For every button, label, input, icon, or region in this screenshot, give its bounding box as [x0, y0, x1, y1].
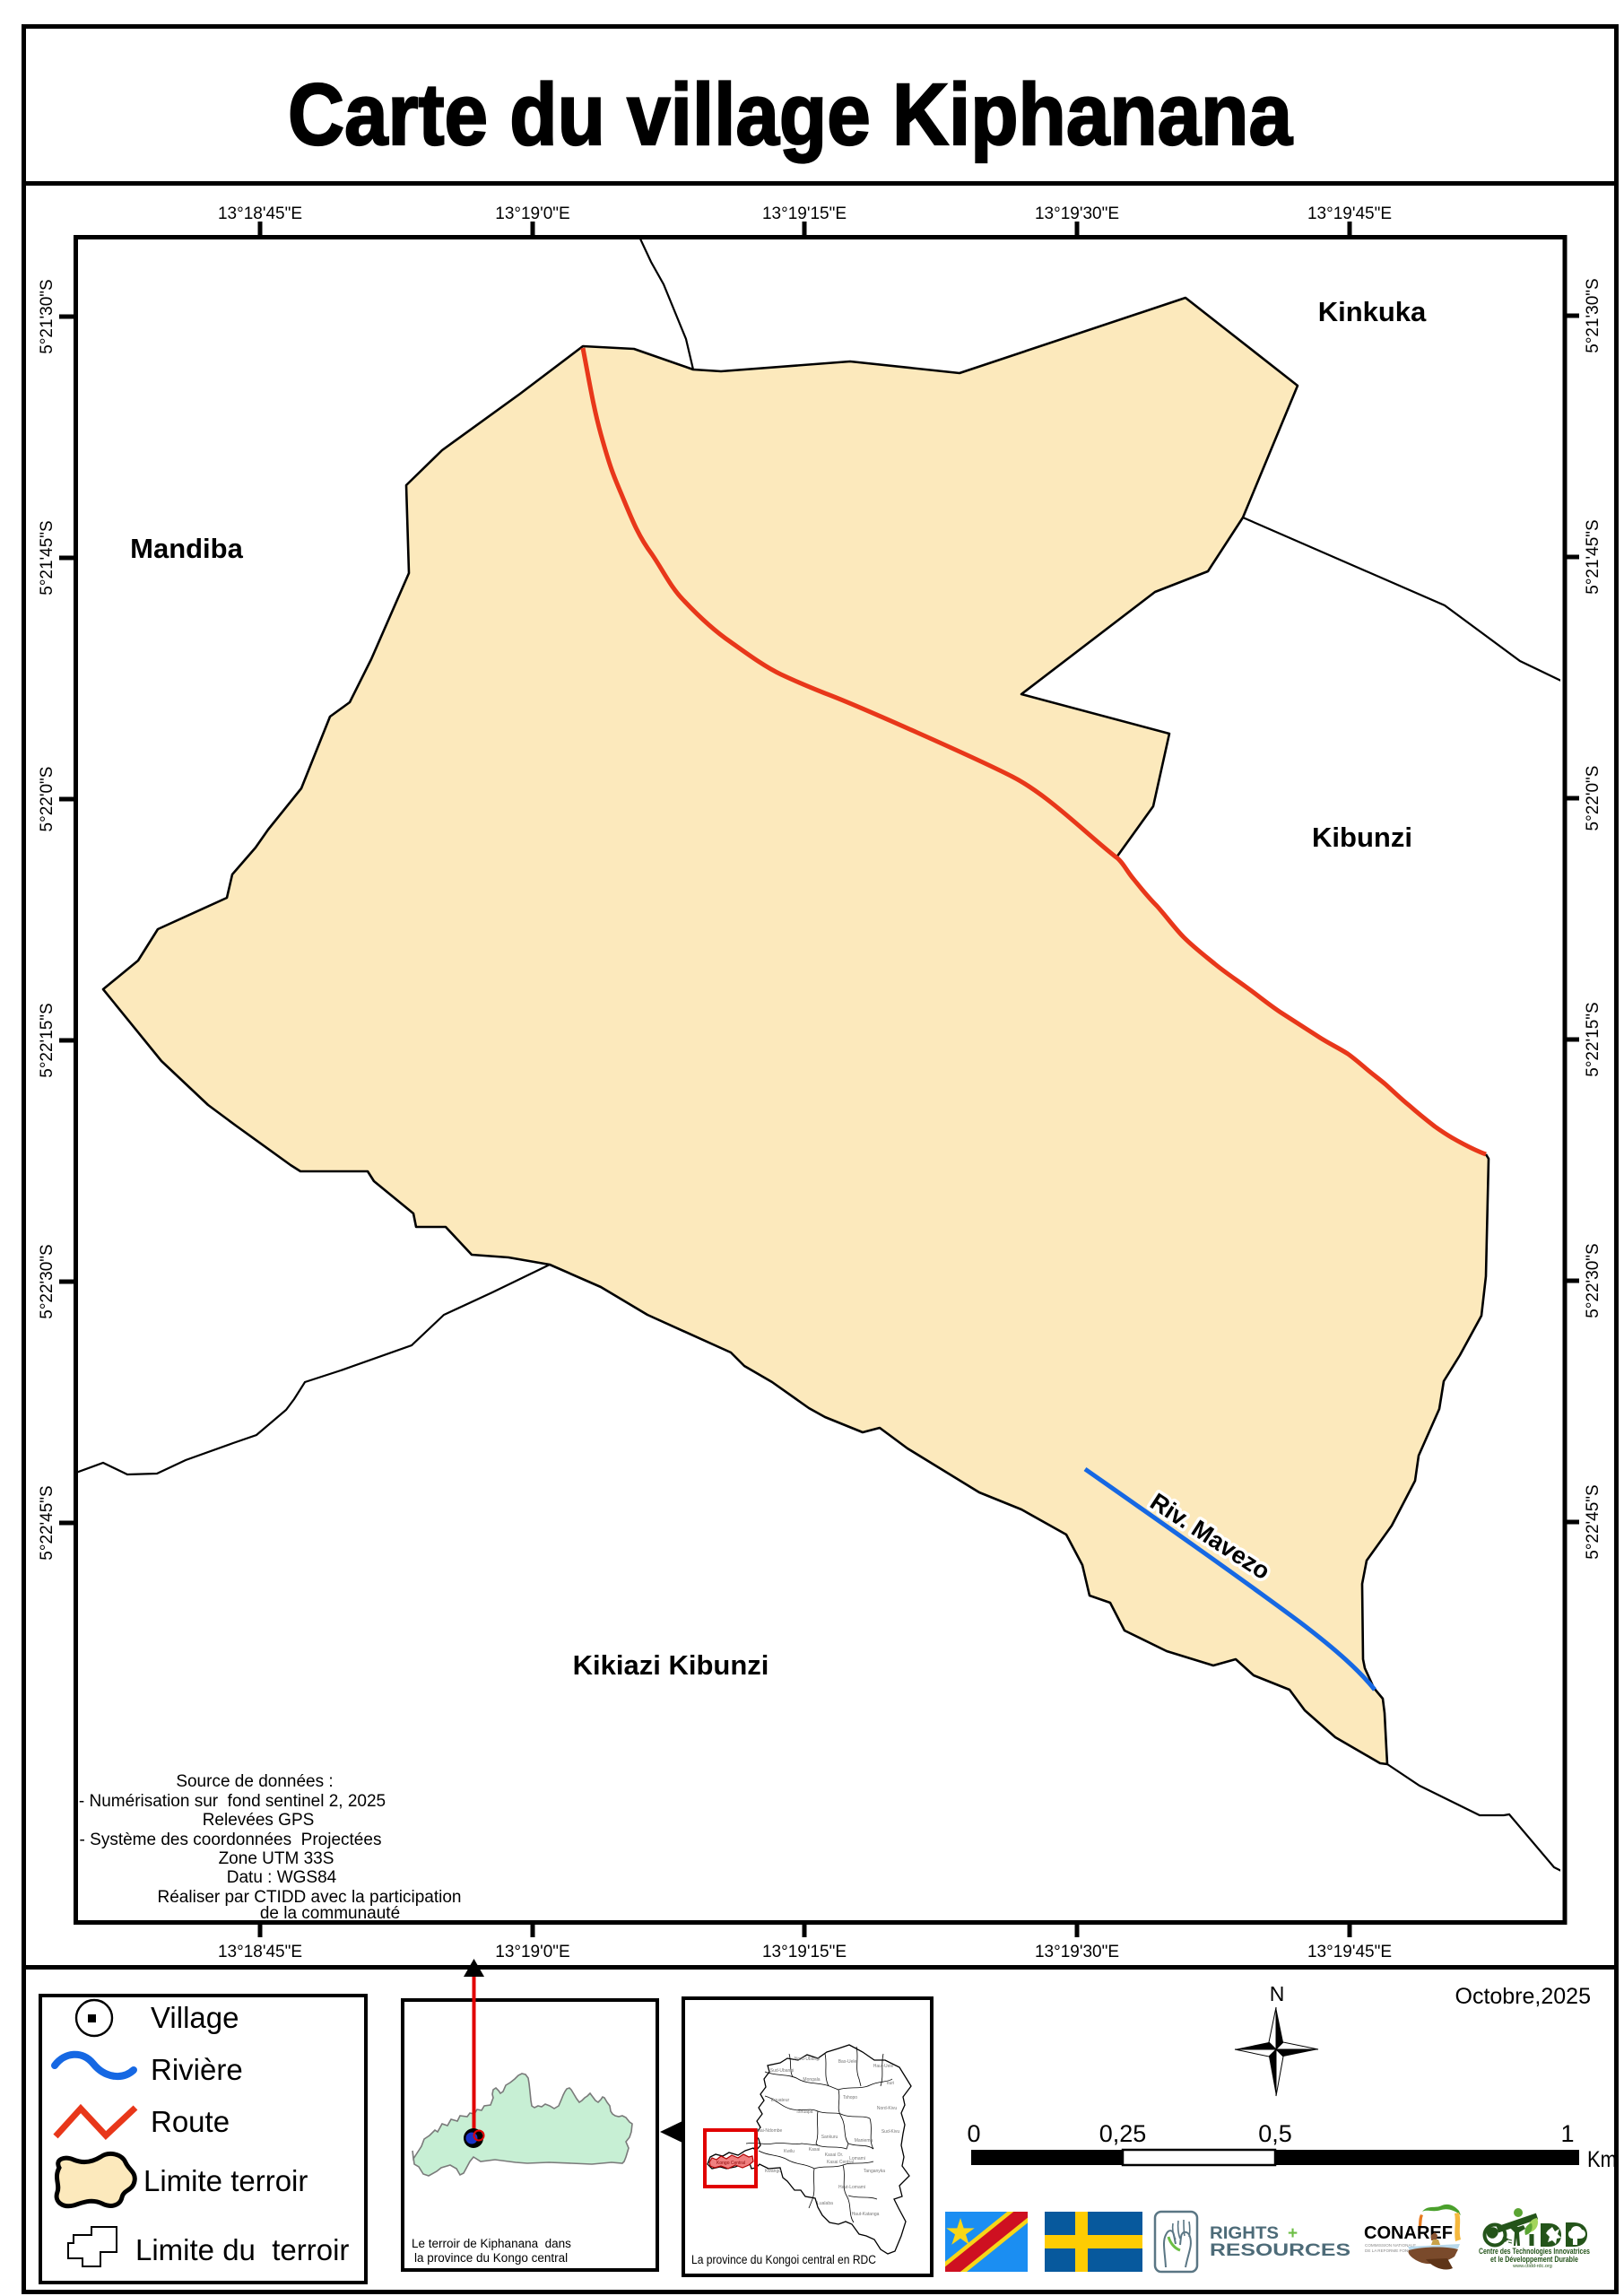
svg-text:Nord-Kivu: Nord-Kivu — [877, 2106, 897, 2111]
svg-text:Mandiba: Mandiba — [130, 533, 243, 564]
svg-text:Tanganyka: Tanganyka — [864, 2169, 885, 2174]
svg-text:Limite du terroir: Limite du terroir — [135, 2233, 349, 2266]
svg-text:Route: Route — [151, 2105, 230, 2138]
svg-text:Le terroir de Kiphanana dans: Le terroir de Kiphanana dans — [412, 2237, 571, 2250]
svg-text:13°18'45"E: 13°18'45"E — [218, 1943, 302, 1961]
svg-text:13°19'15"E: 13°19'15"E — [762, 1943, 847, 1961]
svg-text:Km: Km — [1587, 2147, 1617, 2172]
svg-text:Carte du village Kiphanana: Carte du village Kiphanana — [288, 65, 1293, 163]
svg-text:Sud-Ubangi: Sud-Ubangi — [770, 2068, 794, 2074]
svg-text:Nord-Ubangi: Nord-Ubangi — [795, 2057, 820, 2062]
svg-text:13°19'45"E: 13°19'45"E — [1307, 1943, 1392, 1961]
svg-text:RIGHTS: RIGHTS — [1210, 2224, 1279, 2243]
svg-text:Haut-Lomami: Haut-Lomami — [838, 2185, 865, 2190]
svg-text:0,5: 0,5 — [1258, 2120, 1292, 2147]
svg-text:13°18'45"E: 13°18'45"E — [218, 204, 302, 223]
svg-text:5°22'0"S: 5°22'0"S — [38, 767, 56, 832]
svg-text:5°22'30"S: 5°22'30"S — [38, 1244, 56, 1318]
svg-text:Kwilu: Kwilu — [784, 2149, 795, 2154]
svg-text:Limite terroir: Limite terroir — [143, 2164, 308, 2197]
svg-text:Mongala: Mongala — [803, 2077, 820, 2083]
svg-text:Kongo Central: Kongo Central — [716, 2161, 745, 2166]
svg-text:- Numérisation sur fond senti: - Numérisation sur fond sentinel 2, 2025 — [79, 1792, 386, 1811]
svg-text:- Système des coordonnées Pro: - Système des coordonnées Projectées — [80, 1831, 382, 1849]
svg-text:Haut-Uele: Haut-Uele — [873, 2064, 894, 2069]
svg-text:Rivière: Rivière — [151, 2053, 243, 2086]
svg-text:13°19'0"E: 13°19'0"E — [495, 204, 569, 223]
svg-text:Kinkuka: Kinkuka — [1318, 296, 1427, 327]
svg-text:5°22'15"S: 5°22'15"S — [38, 1003, 56, 1077]
svg-text:5°22'30"S: 5°22'30"S — [1584, 1243, 1602, 1318]
svg-text:Tshuapa: Tshuapa — [796, 2109, 813, 2115]
svg-text:5°22'15"S: 5°22'15"S — [1584, 1002, 1602, 1076]
svg-text:5°21'30"S: 5°21'30"S — [38, 279, 56, 353]
svg-text:Lomami: Lomami — [849, 2156, 865, 2161]
svg-text:et le Développement Durable: et le Développement Durable — [1490, 2255, 1578, 2264]
svg-text:Sud-Kivu: Sud-Kivu — [881, 2129, 900, 2135]
svg-text:+: + — [1288, 2224, 1298, 2243]
svg-text:www.ctidd-rdc.org: www.ctidd-rdc.org — [1512, 2264, 1552, 2269]
svg-text:13°19'30"E: 13°19'30"E — [1035, 204, 1119, 223]
svg-text:13°19'0"E: 13°19'0"E — [495, 1943, 569, 1961]
svg-text:Kikiazi Kibunzi: Kikiazi Kibunzi — [573, 1649, 769, 1681]
svg-text:Haut-Katanga: Haut-Katanga — [852, 2212, 880, 2217]
svg-text:Kibunzi: Kibunzi — [1312, 822, 1412, 853]
svg-text:5°21'45"S: 5°21'45"S — [1584, 519, 1602, 594]
svg-text:Zone UTM 33S: Zone UTM 33S — [219, 1849, 334, 1868]
svg-text:5°22'45"S: 5°22'45"S — [38, 1485, 56, 1560]
svg-text:Maniema: Maniema — [855, 2138, 873, 2144]
svg-text:Village: Village — [151, 2001, 239, 2034]
svg-text:13°19'30"E: 13°19'30"E — [1035, 1943, 1119, 1961]
svg-text:Kwango: Kwango — [765, 2169, 781, 2174]
svg-text:Datu : WGS84: Datu : WGS84 — [227, 1868, 337, 1887]
svg-text:Ituri: Ituri — [887, 2081, 894, 2086]
svg-text:1: 1 — [1560, 2120, 1574, 2147]
svg-text:Lualaba: Lualaba — [817, 2201, 833, 2206]
svg-text:Relevées GPS: Relevées GPS — [203, 1811, 315, 1830]
svg-text:Tshopo: Tshopo — [843, 2095, 857, 2100]
svg-text:Equateur: Equateur — [771, 2098, 790, 2103]
svg-text:de la communauté: de la communauté — [260, 1904, 400, 1923]
svg-text:5°21'30"S: 5°21'30"S — [1584, 278, 1602, 352]
svg-text:CONAREF: CONAREF — [1364, 2223, 1453, 2243]
svg-text:13°19'45"E: 13°19'45"E — [1307, 204, 1392, 223]
svg-text:Mai-Ndombe: Mai-Ndombe — [757, 2128, 783, 2134]
svg-text:5°22'45"S: 5°22'45"S — [1584, 1484, 1602, 1559]
svg-text:Octobre,2025: Octobre,2025 — [1455, 1984, 1592, 2009]
svg-text:Kasai: Kasai — [809, 2147, 821, 2152]
svg-text:0: 0 — [967, 2120, 980, 2147]
svg-text:Bas-Uele: Bas-Uele — [838, 2059, 857, 2065]
svg-text:RESOURCES: RESOURCES — [1210, 2241, 1350, 2260]
svg-text:13°19'15"E: 13°19'15"E — [762, 204, 847, 223]
svg-text:Sankuru: Sankuru — [821, 2135, 838, 2140]
svg-text:5°22'0"S: 5°22'0"S — [1584, 766, 1602, 831]
svg-text:Source de données :: Source de données : — [176, 1772, 333, 1791]
svg-text:N: N — [1270, 1982, 1285, 2005]
svg-text:Kasai Or.: Kasai Or. — [825, 2152, 844, 2158]
svg-text:La province du Kongoi central: La province du Kongoi central en RDC — [691, 2253, 876, 2266]
svg-text:5°21'45"S: 5°21'45"S — [38, 520, 56, 595]
svg-text:la province du Kongo central: la province du Kongo central — [414, 2251, 568, 2265]
svg-text:0,25: 0,25 — [1099, 2120, 1147, 2147]
